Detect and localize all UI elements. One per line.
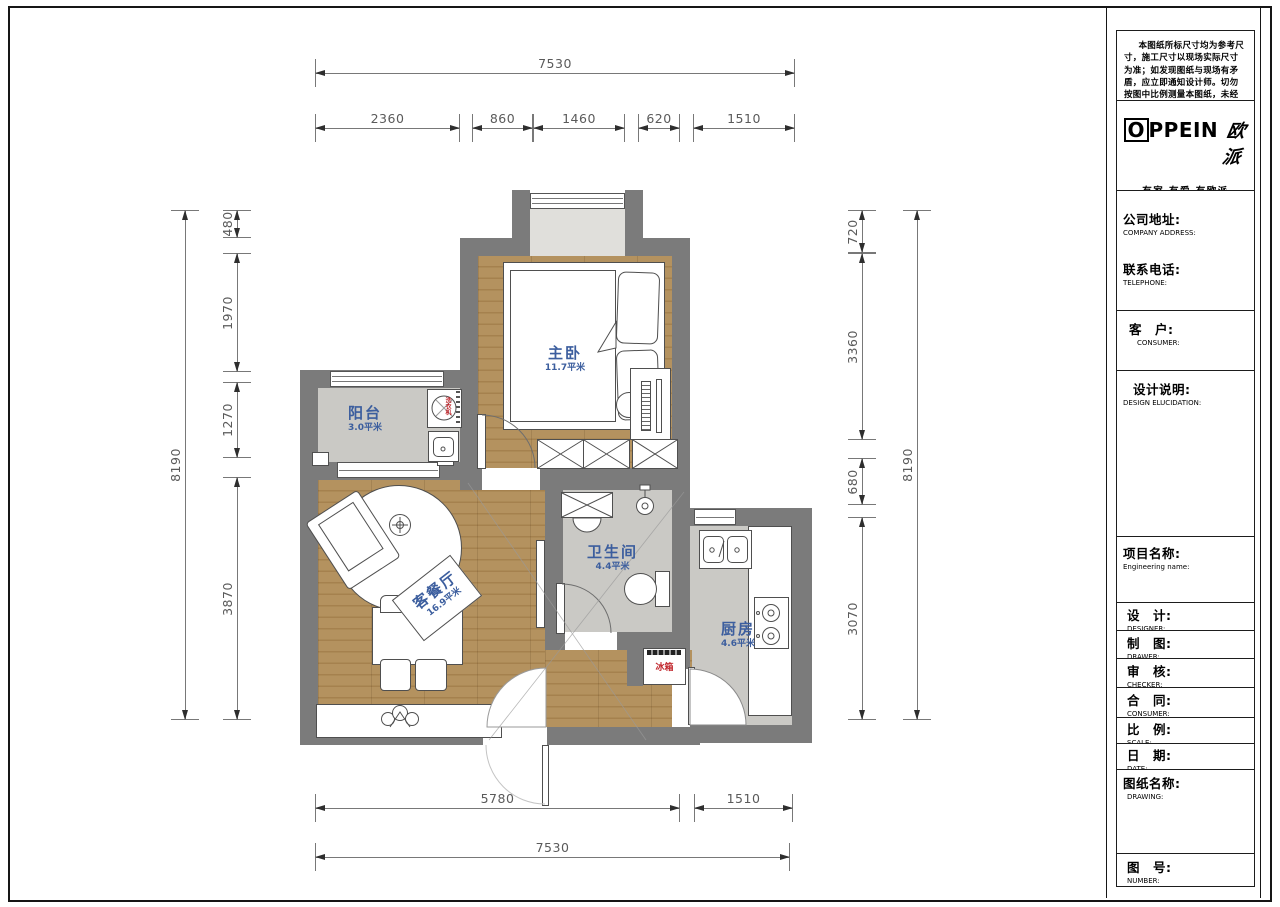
wall-right bbox=[672, 238, 690, 632]
balcony-pillar-left bbox=[312, 452, 329, 466]
mop-sink-basin bbox=[433, 437, 454, 457]
bedroom-door-opening bbox=[482, 468, 540, 490]
dim-right-total: 8190 bbox=[910, 210, 924, 720]
dim-bottom-seg: 1510 bbox=[694, 801, 793, 815]
field-label-en: TELEPHONE: bbox=[1123, 279, 1248, 287]
desk-slats bbox=[641, 381, 651, 431]
room-label-bath: 卫生间 4.4平米 bbox=[560, 543, 665, 573]
field-customer: 客 户: CONSUMER: bbox=[1117, 311, 1254, 371]
field-label-zh: 合 同: bbox=[1127, 690, 1248, 709]
room-area: 3.0平米 bbox=[318, 423, 412, 434]
field-label-en: NUMBER: bbox=[1127, 877, 1248, 885]
field-label-zh: 联系电话: bbox=[1123, 259, 1248, 278]
field-checker: 审 核: CHECKER: bbox=[1117, 659, 1254, 688]
sheet-inner-border bbox=[1260, 8, 1261, 898]
fridge-label: 冰箱 bbox=[655, 660, 673, 673]
room-name: 厨房 bbox=[698, 620, 778, 639]
wall-kitchen-right bbox=[792, 508, 812, 743]
field-designer: 设 计: DESIGNER: bbox=[1117, 603, 1254, 631]
balcony-window bbox=[330, 371, 444, 387]
field-drawing-name: 图纸名称: DRAWING: bbox=[1117, 770, 1254, 854]
wardrobe-section bbox=[632, 439, 678, 469]
dim-top-seg: 1460 bbox=[533, 121, 625, 135]
room-area: 4.4平米 bbox=[560, 562, 665, 573]
bathroom-door-leaf bbox=[556, 583, 565, 634]
wall-fridge-nook bbox=[627, 650, 643, 686]
dim-left-seg: 1270 bbox=[230, 382, 244, 458]
field-project: 项目名称: Engineering name: bbox=[1117, 537, 1254, 603]
room-label-bedroom: 主卧 11.7平米 bbox=[505, 344, 625, 374]
wall-kitchen-bottom bbox=[682, 725, 812, 743]
sink-basin-left bbox=[703, 536, 724, 563]
dining-chair bbox=[380, 659, 411, 691]
oppein-cn-logo: 欧派 bbox=[1221, 117, 1254, 169]
shoe-cabinet bbox=[316, 704, 502, 738]
wall-bay-left bbox=[512, 190, 530, 256]
field-label-zh: 审 核: bbox=[1127, 661, 1248, 680]
bay-window-floor bbox=[530, 209, 625, 256]
dim-top-seg: 2360 bbox=[315, 121, 460, 135]
field-label-en: CONSUMER: bbox=[1127, 710, 1248, 718]
tv bbox=[536, 540, 545, 628]
oppein-logo: OPPEIN bbox=[1124, 118, 1218, 142]
room-name: 阳台 bbox=[318, 404, 412, 423]
room-label-kitchen: 厨房 4.6平米 bbox=[698, 620, 778, 650]
dim-right-seg: 680 bbox=[855, 458, 869, 505]
dim-top-seg: 620 bbox=[638, 121, 680, 135]
room-label-balcony: 阳台 3.0平米 bbox=[318, 404, 412, 434]
kitchen-door-leaf bbox=[688, 667, 695, 725]
field-design-note: 设计说明: DESIGN ELUCIDATION: bbox=[1117, 371, 1254, 537]
field-label-zh: 日 期: bbox=[1127, 745, 1248, 764]
field-label-zh: 设 计: bbox=[1127, 605, 1248, 624]
toilet-tank bbox=[655, 571, 670, 607]
dining-chair bbox=[415, 659, 447, 691]
field-label-en: CONSUMER: bbox=[1129, 339, 1248, 347]
field-label-zh: 图 号: bbox=[1127, 857, 1248, 876]
vanity-cabinet bbox=[561, 492, 613, 518]
field-label-zh: 图纸名称: bbox=[1123, 773, 1248, 792]
wardrobe-section bbox=[583, 439, 630, 469]
title-block: 本图纸所标尺寸均为参考尺寸，施工尺寸以现场实际尺寸为准；如发现图纸与现场有矛盾，… bbox=[1116, 30, 1255, 887]
kitchen-window bbox=[694, 509, 736, 525]
field-label-en: DESIGN ELUCIDATION: bbox=[1123, 399, 1248, 407]
brand-slogan: 有家 有爱 有欧派 bbox=[1121, 183, 1250, 191]
washer-panel bbox=[456, 391, 460, 425]
field-label-en: Engineering name: bbox=[1123, 563, 1248, 571]
drawing-note: 本图纸所标尺寸均为参考尺寸，施工尺寸以现场实际尺寸为准；如发现图纸与现场有矛盾，… bbox=[1117, 31, 1254, 101]
field-label-zh: 制 图: bbox=[1127, 633, 1248, 652]
dim-left-seg: 480 bbox=[230, 210, 244, 238]
desk-bar bbox=[656, 379, 662, 433]
bathroom-door-opening bbox=[565, 632, 617, 650]
dim-right-seg: 720 bbox=[855, 210, 869, 253]
wardrobe-section bbox=[537, 439, 584, 469]
balcony-sliding-door bbox=[337, 462, 440, 478]
titleblock-separator bbox=[1106, 8, 1107, 898]
room-name: 卫生间 bbox=[560, 543, 665, 562]
room-area: 11.7平米 bbox=[505, 363, 625, 374]
field-label-en: CHECKER: bbox=[1127, 681, 1248, 688]
washer-label: 洗衣机 bbox=[440, 397, 450, 415]
field-number: 图 号: NUMBER: bbox=[1117, 854, 1254, 886]
wall-bedroom-left bbox=[460, 238, 478, 490]
dim-top-seg: 860 bbox=[472, 121, 533, 135]
toilet-bowl bbox=[624, 573, 657, 605]
field-label-zh: 客 户: bbox=[1129, 319, 1248, 338]
floorplan-sheet: 冰箱 bbox=[0, 0, 1280, 907]
pillow bbox=[616, 271, 660, 344]
field-label-en: COMPANY ADDRESS: bbox=[1123, 229, 1248, 237]
field-label-zh: 公司地址: bbox=[1123, 209, 1248, 228]
field-label-zh: 比 例: bbox=[1127, 719, 1248, 738]
field-scale: 比 例: SCALE: bbox=[1117, 718, 1254, 744]
bedroom-door-leaf bbox=[477, 414, 486, 469]
field-contract: 合 同: CONSUMER: bbox=[1117, 688, 1254, 718]
dim-left-total: 8190 bbox=[178, 210, 192, 720]
dim-right-seg: 3360 bbox=[855, 253, 869, 440]
dim-left-seg: 3870 bbox=[230, 477, 244, 720]
dim-top-total: 7530 bbox=[315, 66, 795, 80]
brand-logo: OPPEIN 欧派 有家 有爱 有欧派 bbox=[1117, 101, 1254, 191]
room-area: 4.6平米 bbox=[698, 639, 778, 650]
field-drawer: 制 图: DRAWER: bbox=[1117, 631, 1254, 659]
dim-bottom-seg: 5780 bbox=[315, 801, 680, 815]
dim-left-seg: 1970 bbox=[230, 253, 244, 372]
wall-bay-right bbox=[625, 190, 643, 256]
field-date: 日 期: DATE: bbox=[1117, 744, 1254, 770]
field-label-zh: 项目名称: bbox=[1123, 543, 1248, 562]
dim-top-seg: 1510 bbox=[693, 121, 795, 135]
fridge-vent bbox=[647, 650, 681, 655]
sink-basin-right bbox=[727, 536, 748, 563]
wall-balcony-left bbox=[300, 370, 318, 745]
room-name: 主卧 bbox=[505, 344, 625, 363]
dim-bottom-total: 7530 bbox=[315, 850, 790, 864]
field-label-en: DRAWING: bbox=[1123, 793, 1248, 801]
bay-window bbox=[530, 193, 625, 209]
field-address-phone: 公司地址: COMPANY ADDRESS: 联系电话: TELEPHONE: bbox=[1117, 191, 1254, 311]
dim-right-seg: 3070 bbox=[855, 517, 869, 720]
field-label-zh: 设计说明: bbox=[1123, 379, 1248, 398]
